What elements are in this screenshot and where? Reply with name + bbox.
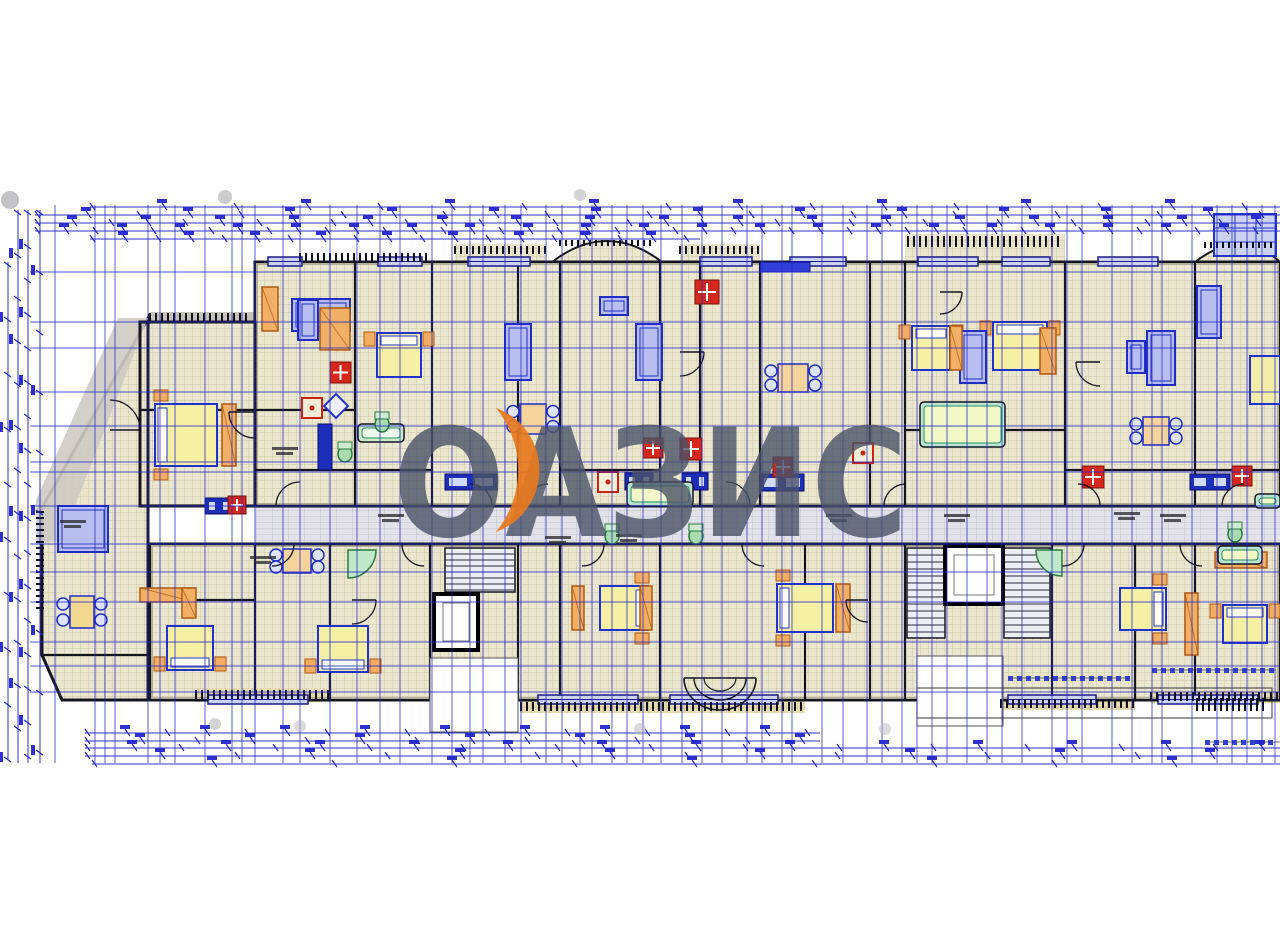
dim-text (221, 740, 231, 744)
dim-text (315, 740, 325, 744)
room-label (250, 556, 276, 559)
dim-text (580, 231, 590, 235)
room-label (60, 520, 86, 523)
dim-text (127, 740, 137, 744)
dim-text (215, 215, 225, 219)
dim-text (316, 231, 326, 235)
nightstand (364, 332, 375, 346)
tile-dash (1116, 676, 1121, 681)
tile-dash (1053, 676, 1058, 681)
dim-text (877, 199, 887, 203)
toilet-tank (338, 442, 352, 449)
smudge (879, 723, 891, 735)
dim-text (733, 215, 743, 219)
smudge (574, 189, 586, 201)
chair (1170, 418, 1182, 430)
dim-text (581, 223, 591, 227)
dim-text (407, 223, 417, 227)
dim-text (207, 756, 217, 760)
dim-text (0, 422, 3, 432)
dim-text (1101, 207, 1111, 211)
dim-text (455, 748, 465, 752)
sofa (298, 300, 318, 340)
tile-dash (1233, 668, 1238, 673)
dim-text (81, 207, 91, 211)
tile-dash (1206, 668, 1211, 673)
tile-dash (1197, 668, 1202, 673)
dim-text (523, 223, 533, 227)
dim-text (9, 248, 13, 258)
dim-text (0, 312, 3, 322)
dim-text (1021, 199, 1031, 203)
room-label (944, 514, 970, 517)
tile-dash (1017, 676, 1022, 681)
tile-dash (1170, 668, 1175, 673)
smudge (634, 723, 646, 735)
dim-text (1165, 199, 1175, 203)
dim-text (755, 223, 765, 227)
tile-dash (1044, 676, 1049, 681)
room-label (64, 525, 81, 528)
dim-text (301, 199, 311, 203)
room-label (1118, 517, 1135, 520)
chair (765, 379, 777, 391)
pillow (780, 588, 789, 628)
nightstand (1153, 574, 1167, 585)
dim-text (9, 506, 13, 516)
dim-text (871, 223, 881, 227)
dim-text (135, 733, 145, 737)
dim-text (31, 265, 35, 275)
dim-text (157, 199, 167, 203)
nightstand (1210, 604, 1221, 618)
tile-dash (1071, 676, 1076, 681)
dim-text (118, 231, 128, 235)
pillow (322, 660, 364, 669)
room-label (272, 447, 298, 450)
bay-window (1214, 214, 1276, 256)
dim-text (31, 625, 35, 635)
burner (310, 406, 315, 411)
dim-text (879, 740, 889, 744)
smudge (294, 720, 306, 732)
tile-dash (1242, 668, 1247, 673)
chair (312, 549, 324, 561)
dim-text (409, 740, 419, 744)
dim-text (31, 745, 35, 755)
dim-text (437, 215, 447, 219)
nightstand (215, 657, 226, 671)
nightstand (154, 469, 168, 480)
dim-text (305, 748, 315, 752)
room-label (1164, 519, 1181, 522)
floorplan-canvas: ОАЗИС (0, 0, 1280, 933)
tile-dash (1224, 668, 1229, 673)
dim-text (1167, 756, 1177, 760)
nightstand (776, 635, 790, 646)
dim-text (589, 199, 599, 203)
dim-text (807, 215, 817, 219)
dim-text (0, 642, 3, 652)
dim-text (9, 420, 13, 430)
dim-text (67, 215, 77, 219)
tile-dash (1107, 676, 1112, 681)
room-label (1114, 512, 1140, 515)
nightstand (635, 572, 649, 583)
dim-text (1045, 223, 1055, 227)
dim-text (585, 215, 595, 219)
dim-text (1251, 215, 1261, 219)
dim-text (360, 725, 370, 729)
dim-text (9, 592, 13, 602)
dim-text (184, 231, 194, 235)
dim-text (9, 334, 13, 344)
dim-text (691, 740, 701, 744)
dim-text (785, 740, 795, 744)
dim-text (363, 215, 373, 219)
dim-text (1219, 223, 1229, 227)
dim-text (445, 199, 455, 203)
dim-text (19, 511, 23, 521)
dim-text (646, 231, 656, 235)
dim-text (19, 239, 23, 249)
toilet-tank (1228, 522, 1242, 529)
dim-text (795, 207, 805, 211)
dim-text (245, 733, 255, 737)
dim-text (1203, 207, 1213, 211)
dim-text (597, 740, 607, 744)
chair (809, 379, 821, 391)
dim-text (59, 223, 69, 227)
dim-text (19, 375, 23, 385)
chair (1170, 432, 1182, 444)
dim-text (1067, 740, 1077, 744)
dim-text (19, 307, 23, 317)
tile-dash (1035, 676, 1040, 681)
room-label (1160, 514, 1186, 517)
room-label (276, 452, 293, 455)
dim-text (514, 231, 524, 235)
dim-text (511, 215, 521, 219)
dim-text (285, 207, 295, 211)
tile-dash (1223, 740, 1228, 745)
dining-table (283, 549, 311, 573)
dim-text (9, 678, 13, 688)
watermark: ОАЗИС (393, 398, 908, 572)
chair (270, 561, 282, 573)
dim-text (1055, 748, 1065, 752)
dim-text (639, 223, 649, 227)
dim-text (117, 223, 127, 227)
pillow (158, 408, 167, 462)
tile-dash (1026, 676, 1031, 681)
dim-text (687, 756, 697, 760)
tile-dash (1241, 740, 1246, 745)
dim-text (685, 733, 695, 737)
room-label (254, 561, 271, 564)
dim-text (929, 223, 939, 227)
dim-text (448, 231, 458, 235)
dim-text (141, 215, 151, 219)
dim-text (387, 207, 397, 211)
dining-table (1143, 417, 1169, 445)
floorplan-stage: ОАЗИС (0, 0, 1280, 933)
pillow (997, 325, 1043, 334)
dim-text (733, 199, 743, 203)
smudge (218, 190, 232, 204)
tile-dash (1205, 740, 1210, 745)
dim-text (1029, 215, 1039, 219)
dim-text (31, 385, 35, 395)
dim-text (19, 647, 23, 657)
smudge (209, 718, 221, 730)
dim-text (600, 725, 610, 729)
dim-text (19, 579, 23, 589)
sofa (1127, 341, 1145, 373)
tile-dash (1251, 668, 1256, 673)
dim-text (19, 443, 23, 453)
dim-text (289, 215, 299, 219)
dim-text (987, 223, 997, 227)
tile-dash (1232, 740, 1237, 745)
dim-text (999, 207, 1009, 211)
room-label (948, 519, 965, 522)
dim-text (19, 715, 23, 725)
chair (270, 549, 282, 561)
sofa (58, 506, 108, 552)
chair (57, 598, 69, 610)
chair (765, 365, 777, 377)
tub-basin (924, 406, 1001, 443)
dim-text (0, 532, 3, 542)
tile-dash (1269, 668, 1274, 673)
dim-text (1177, 215, 1187, 219)
tile-dash (1179, 668, 1184, 673)
smudge (1, 191, 19, 209)
dim-text (905, 748, 915, 752)
chair (312, 561, 324, 573)
tile-dash (1125, 676, 1130, 681)
window-sill (760, 262, 810, 272)
tile-dash (1152, 668, 1157, 673)
dim-text (280, 725, 290, 729)
tile-dash (1098, 676, 1103, 681)
nightstand (899, 325, 910, 339)
tile-dash (1089, 676, 1094, 681)
dim-text (795, 733, 805, 737)
dim-text (440, 725, 450, 729)
dim-text (382, 231, 392, 235)
dim-text (489, 207, 499, 211)
toilet-tank (375, 412, 389, 419)
sink-basin (1194, 478, 1206, 486)
dim-text (0, 752, 3, 762)
dim-text (175, 223, 185, 227)
dim-text (755, 748, 765, 752)
pillow (916, 329, 946, 338)
dim-text (183, 207, 193, 211)
dim-text (1205, 748, 1215, 752)
tub-basin (1222, 550, 1258, 560)
chair (57, 614, 69, 626)
dim-text (1255, 740, 1265, 744)
dim-text (955, 215, 965, 219)
pillow (381, 336, 417, 345)
dining-table (70, 596, 94, 628)
dim-text (605, 748, 615, 752)
tile-dash (1062, 676, 1067, 681)
dim-text (120, 725, 130, 729)
dim-text (973, 740, 983, 744)
sink-basin (1214, 478, 1226, 486)
tile-dash (1268, 740, 1273, 745)
watermark-text: ОАЗИС (393, 398, 908, 572)
tile-dash (1250, 740, 1255, 745)
tile-dash (1008, 676, 1013, 681)
chair (809, 365, 821, 377)
